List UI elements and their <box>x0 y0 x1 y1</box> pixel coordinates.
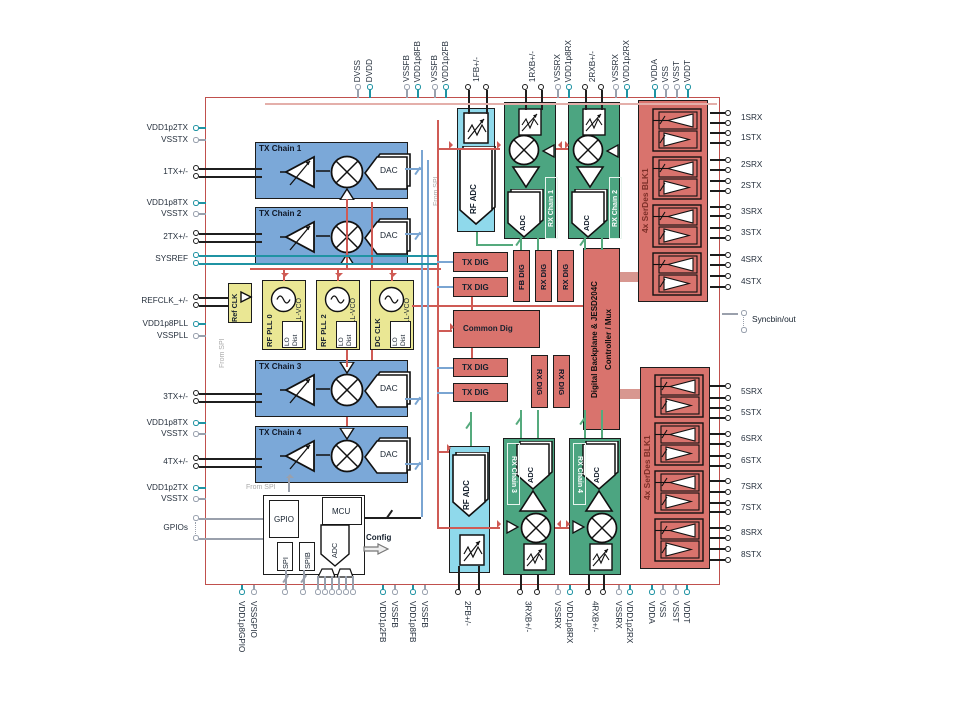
pin-left-vsstx <box>193 431 198 436</box>
pin-label: 4STX <box>741 277 761 286</box>
pin-label: GPIOs <box>163 523 188 532</box>
pin-stub <box>199 202 206 203</box>
wire-r <box>471 297 473 310</box>
wire-k <box>199 241 262 243</box>
pin-stub <box>710 433 725 434</box>
block-diagram: TX DIG TX DIG TX DIG TX DIG FB DIG RX DI… <box>0 0 956 704</box>
wire-r <box>346 350 348 367</box>
pin-stub <box>662 585 663 590</box>
wire-k <box>199 458 262 460</box>
arrowhead-icon <box>450 323 458 331</box>
pin-right-4stx <box>725 284 731 290</box>
wire-b <box>437 392 453 394</box>
pin-top-vsst <box>674 84 679 89</box>
wire-r <box>371 350 373 360</box>
pin-bottom-vsst <box>673 589 678 594</box>
pin-stub <box>710 169 725 170</box>
pin-label: REFCLK_+/- <box>141 296 188 305</box>
wire-gy <box>199 538 263 540</box>
pin-label: VDD1p8RX <box>564 40 573 82</box>
wire-gy <box>722 313 738 315</box>
pin-right-1stx <box>725 130 731 136</box>
common-dig-block: Common Dig <box>453 310 540 348</box>
pin-left-vsspll <box>193 333 198 338</box>
pin-stub <box>199 335 206 336</box>
pin-label: 2RXB+/- <box>588 51 597 82</box>
rx-chain-label: RX Chain 2 <box>612 190 619 227</box>
wire-g <box>601 410 603 438</box>
gpio-label: GPIO <box>274 515 294 524</box>
pin-stub <box>710 142 725 143</box>
pin-top-2rxb <box>598 84 604 90</box>
pll-block-2: DC CLKPLL-VCOLODist <box>370 280 414 350</box>
wire-t <box>199 263 437 265</box>
pin-right-1stx <box>725 140 731 146</box>
pin-right-5stx <box>725 405 731 411</box>
config-label: Config <box>366 533 391 542</box>
tx-dig-label: TX DIG <box>462 388 489 397</box>
adc-label: ADC <box>518 197 527 231</box>
pin-stub <box>710 417 725 418</box>
buffer-icon <box>239 290 253 304</box>
pin-stub <box>710 180 725 181</box>
pin-bottom-vdd1p8rx <box>567 589 572 594</box>
pin-stub <box>710 480 725 481</box>
pin-stub <box>241 585 242 590</box>
pin-stub <box>710 537 725 538</box>
pin-label: 8STX <box>741 550 761 559</box>
wire-b <box>427 160 429 460</box>
arrowhead-icon <box>565 141 573 149</box>
wire-b <box>437 261 453 263</box>
pin-stub <box>626 90 627 98</box>
lo-dist-label: LODist <box>338 324 354 346</box>
pin-label: VSSGPIO <box>249 601 258 638</box>
wire-r <box>437 148 500 150</box>
rx-chain-label: RX Chain 1 <box>548 190 555 227</box>
jesd-label: Digital Backplane & JESD204C Controller … <box>588 251 618 429</box>
tx-dig-label: TX DIG <box>462 258 489 267</box>
from-spi-note: From SPI <box>219 328 226 368</box>
pin-top-vdd1p2fb <box>443 84 448 89</box>
pin-stub <box>382 585 383 590</box>
pin-label: VSST <box>671 601 680 622</box>
arrowhead-icon <box>447 444 455 452</box>
wire-r <box>346 417 348 426</box>
serdes-lane <box>652 204 702 248</box>
pin-left-2tx <box>193 230 199 236</box>
tx-dig-block-2: TX DIG <box>453 277 508 297</box>
pin-bottom-unlabeled <box>336 589 341 594</box>
gpio-box: GPIO <box>269 500 299 538</box>
lo-buffer-icon <box>505 520 520 534</box>
pin-top-vdd1p8rx <box>566 84 571 89</box>
wire-p <box>265 103 717 105</box>
adc-label: ADC <box>582 197 591 231</box>
attenuator-icon <box>589 543 614 572</box>
pin-stub <box>618 585 619 590</box>
pin-stub <box>557 90 558 98</box>
pin-stub <box>199 487 206 488</box>
pll-name: RF PLL 0 <box>265 287 274 347</box>
pin-label: 4RXB+/- <box>591 601 600 632</box>
rx-chain-label-box: RX Chain 1 <box>545 177 558 239</box>
wire-r <box>371 202 373 268</box>
tx-chain-title: TX Chain 1 <box>259 144 301 153</box>
rx-chain-label: RX Chain 4 <box>576 456 583 493</box>
rx-dig-block-2: RX DIG <box>557 250 574 302</box>
pin-label: 2FB+/- <box>463 601 472 626</box>
pin-right-5srx <box>725 383 731 389</box>
mixer-icon <box>329 438 365 474</box>
pin-stub <box>710 215 725 216</box>
pin-right-2srx <box>725 167 731 173</box>
ref-clk-block: Ref CLK <box>228 283 252 323</box>
pin-top-2rxb <box>582 84 588 90</box>
pin-stub <box>687 90 688 98</box>
pin-right-3stx <box>725 235 731 241</box>
pin-bottom-vssfb <box>392 589 397 594</box>
pin-right-syncb <box>741 310 746 315</box>
wire-g <box>476 244 513 246</box>
pin-stub <box>615 90 616 98</box>
pin-label: VSSRX <box>611 54 620 82</box>
serdes-lane <box>654 470 704 514</box>
serdes-bottom-label: 4x SerDes BLK1 <box>642 375 654 561</box>
rf-adc-label: RF ADC <box>462 462 471 510</box>
tx-chain-4-block: TX Chain 4DAC <box>255 426 408 483</box>
pin-bottom-2fb <box>455 589 461 595</box>
dac-label: DAC <box>380 230 398 240</box>
adc-pentagon <box>582 441 620 491</box>
pin-bottom-vssgpio <box>251 589 256 594</box>
pin-right-4srx <box>725 252 731 258</box>
wire-g <box>537 410 539 438</box>
pin-stub <box>557 585 558 590</box>
pin-stub <box>710 122 725 123</box>
pin-stub <box>710 112 725 113</box>
pin-left-gpios <box>193 515 198 520</box>
pin-stub <box>568 90 569 98</box>
pin-label: VDD1p8FB <box>408 601 417 642</box>
rx-dig-block-3: RX DIG <box>531 355 548 408</box>
mcu-adc-label: ADC <box>330 532 339 558</box>
pin-label: 3SRX <box>741 207 762 216</box>
amplifier-icon <box>280 219 316 255</box>
tx-dig-label: TX DIG <box>462 283 489 292</box>
wire-k <box>199 168 262 170</box>
pin-left-vdd1p8tx <box>193 200 198 205</box>
pin-stub <box>710 443 725 444</box>
pin-left-vdd1p8tx <box>193 420 198 425</box>
wire-g <box>476 232 478 244</box>
pin-label: VDD1p8TX <box>147 418 188 427</box>
pin-stub <box>710 548 725 549</box>
pin-stub <box>199 139 206 140</box>
pin-stub <box>352 576 353 589</box>
rx-chain-2-block: RX Chain 2ADC <box>568 102 620 239</box>
wire-g <box>537 238 539 250</box>
wire-gy <box>199 518 263 520</box>
pin-label: VDDT <box>682 601 691 623</box>
pin-stub <box>629 585 630 590</box>
mixer-icon <box>571 133 606 168</box>
pin-left-vsstx <box>193 211 198 216</box>
pin-right-2srx <box>725 157 731 163</box>
pin-stub <box>710 491 725 492</box>
pin-top-vssfb <box>432 84 437 89</box>
pin-top-vdd1p2rx <box>624 84 629 89</box>
rx-chain-4-block: RX Chain 4ADC <box>569 438 621 575</box>
dac-label: DAC <box>380 165 398 175</box>
rx-chain-label-box: RX Chain 4 <box>573 443 586 505</box>
attenuator-icon <box>523 543 548 572</box>
pin-left-1tx <box>193 173 199 179</box>
pin-stub <box>199 213 206 214</box>
wire-g <box>584 410 586 438</box>
pin-label: VSSFB <box>420 601 429 628</box>
pin-label: VDD1p8FB <box>413 41 422 82</box>
pll-name: DC CLK <box>373 287 382 347</box>
pin-left-refclk <box>193 302 199 308</box>
serdes-lane <box>652 156 702 200</box>
pin-left-2tx <box>193 238 199 244</box>
pin-right-8stx <box>725 557 731 563</box>
mcu-block: GPIO MCU SPI SPIB ADC <box>263 495 365 575</box>
rx-dig-label: RX DIG <box>561 254 570 300</box>
lo-dist-label: LODist <box>392 324 408 346</box>
pin-bottom-vddt <box>684 589 689 594</box>
pin-stub <box>369 90 370 98</box>
spib-label: SPIB <box>303 546 312 569</box>
pin-label: VSS <box>661 66 670 82</box>
pin-stub <box>569 585 570 590</box>
tx-chain-3-block: TX Chain 3DAC <box>255 360 408 417</box>
pin-stub <box>675 585 676 590</box>
pin-right-2stx <box>725 178 731 184</box>
pin-stub <box>710 502 725 503</box>
dotted-link <box>195 522 196 534</box>
wire-gy <box>288 478 290 492</box>
pin-left-4tx <box>193 463 199 469</box>
pin-label: 1FB+/- <box>472 57 481 82</box>
pin-label: VSSTX <box>161 209 188 218</box>
pin-top-vssrx <box>555 84 560 89</box>
pin-label: DVSS <box>353 60 362 82</box>
wire-k <box>199 466 262 468</box>
wire-k <box>525 90 527 110</box>
serdes-lane <box>654 374 704 418</box>
pin-bottom-3rxb <box>517 589 523 595</box>
pin-label: VDD1p8PLL <box>142 319 188 328</box>
arrowhead-icon <box>497 520 505 528</box>
pin-top-1fb <box>483 84 489 90</box>
pin-stub <box>710 190 725 191</box>
pin-bottom-4rxb <box>585 589 591 595</box>
pin-left-vdd1p8pll <box>193 321 198 326</box>
pin-stub <box>199 498 206 499</box>
mixer-icon <box>519 511 554 546</box>
pin-top-vdda <box>652 84 657 89</box>
pin-label: 6SRX <box>741 434 762 443</box>
attenuator-icon <box>459 534 485 566</box>
pin-label: VSSFB <box>430 55 439 82</box>
wire-g <box>601 238 603 250</box>
sync-label: Syncbin/out <box>752 314 796 324</box>
pin-right-7stx <box>725 500 731 506</box>
spi-box: SPI <box>277 542 293 571</box>
pin-right-5srx <box>725 395 731 401</box>
mcu-label: MCU <box>332 507 350 516</box>
pin-stub <box>651 585 652 590</box>
pin-stub <box>686 585 687 590</box>
pin-right-8srx <box>725 535 731 541</box>
rx-chain-label-box: RX Chain 3 <box>507 443 520 505</box>
pin-label: 5STX <box>741 408 761 417</box>
wire-k <box>520 574 522 590</box>
attenuator-icon <box>463 112 489 144</box>
wire-g <box>470 412 472 446</box>
pin-label: 2SRX <box>741 160 762 169</box>
rx-dig-label: RX DIG <box>557 359 566 406</box>
mixer-icon <box>329 372 365 408</box>
pin-right-7srx <box>725 478 731 484</box>
pin-stub <box>710 275 725 276</box>
rf-adc-label: RF ADC <box>469 162 478 214</box>
wire-k <box>478 566 480 590</box>
pin-stub <box>394 585 395 590</box>
pin-label: VSSTX <box>161 429 188 438</box>
pin-bottom-4rxb <box>600 589 606 595</box>
pin-label: 1RXB+/- <box>528 51 537 82</box>
pin-left-vdd1p2tx <box>193 485 198 490</box>
ref-clk-label: Ref CLK <box>230 286 239 322</box>
amplifier-icon <box>518 489 548 513</box>
lo-dist-box: LODist <box>390 321 411 348</box>
pin-stub <box>654 90 655 98</box>
pin-bottom-vssfb <box>422 589 427 594</box>
pin-right-4stx <box>725 273 731 279</box>
pll-block-0: RF PLL 0PLL-VCOLODist <box>262 280 306 350</box>
pin-bottom-unlabeled <box>315 589 320 594</box>
pin-stub <box>434 90 435 98</box>
pin-stub <box>199 433 206 434</box>
pin-label: VSSTX <box>161 135 188 144</box>
adc-pentagon <box>459 146 497 228</box>
pin-bottom-unlabeled <box>300 589 305 594</box>
arrowhead-icon <box>554 141 562 149</box>
tx-dig-block-4: TX DIG <box>453 383 508 402</box>
pin-stub <box>710 159 725 160</box>
config-arrow-icon <box>363 543 391 555</box>
pin-right-7stx <box>725 509 731 515</box>
lo-dist-box: LODist <box>336 321 357 348</box>
adc-label: ADC <box>592 449 601 483</box>
pin-top-dvdd <box>367 84 372 89</box>
pin-left-vsstx <box>193 496 198 501</box>
lo-dist-box: LODist <box>282 321 303 348</box>
pin-label: VDDT <box>683 60 692 82</box>
pin-top-1rxb <box>522 84 528 90</box>
pin-label: 5SRX <box>741 387 762 396</box>
pin-label: 8SRX <box>741 528 762 537</box>
pin-stub <box>331 576 332 589</box>
common-dig-label: Common Dig <box>463 324 513 333</box>
arrowhead-icon <box>449 141 457 149</box>
adc-pentagon <box>516 441 554 491</box>
wire-k <box>537 574 539 590</box>
pin-left-vsstx <box>193 137 198 142</box>
wire-k <box>199 176 262 178</box>
pin-right-syncb <box>741 327 746 332</box>
tx-chain-1-block: TX Chain 1DAC <box>255 142 408 199</box>
pin-stub <box>338 576 339 589</box>
pin-right-2stx <box>725 188 731 194</box>
pin-label: VSSPLL <box>157 331 188 340</box>
arrowhead-icon <box>566 520 574 528</box>
pin-left-4tx <box>193 455 199 461</box>
wire-k <box>486 90 488 114</box>
pin-top-vssrx <box>613 84 618 89</box>
pin-stub <box>199 127 206 128</box>
pin-stub <box>424 585 425 590</box>
rx-dig-block-1: RX DIG <box>535 250 552 302</box>
pin-left-gpios <box>193 535 198 540</box>
pin-left-sysref <box>193 252 198 257</box>
pin-stub <box>710 455 725 456</box>
vco-icon <box>378 286 405 313</box>
wire-r <box>250 268 441 270</box>
pin-label: 2STX <box>741 181 761 190</box>
pin-stub <box>199 323 206 324</box>
arrowhead-icon <box>497 141 505 149</box>
spib-box: SPIB <box>299 542 315 571</box>
pin-bottom-vdda <box>649 589 654 594</box>
pin-stub <box>345 576 346 589</box>
jesd-serdes-connector <box>620 272 638 282</box>
pin-top-vddt <box>685 84 690 89</box>
wire-t <box>199 255 437 257</box>
pin-label: VSSRX <box>614 601 623 629</box>
pin-stub <box>710 397 725 398</box>
pin-stub <box>710 264 725 265</box>
wire-k <box>199 305 228 307</box>
pin-stub <box>445 90 446 98</box>
pin-right-1srx <box>725 110 731 116</box>
pin-stub <box>710 227 725 228</box>
pin-right-6srx <box>725 441 731 447</box>
from-spi-note: From SPI <box>246 484 276 491</box>
pin-right-4srx <box>725 262 731 268</box>
pin-bottom-vdd1p2fb <box>380 589 385 594</box>
pin-stub <box>417 90 418 98</box>
pin-top-1fb <box>465 84 471 90</box>
pin-right-1srx <box>725 120 731 126</box>
fb-dig-label: FB DIG <box>517 254 526 300</box>
pin-bottom-vdd1p8gpio <box>239 589 244 594</box>
pin-label: DVDD <box>365 59 374 82</box>
pin-label: SYSREF <box>155 254 188 263</box>
wire-g <box>520 410 522 438</box>
pin-label: VSST <box>672 61 681 82</box>
serdes-lane <box>652 108 702 152</box>
mixer-icon <box>507 133 542 168</box>
pin-left-sysref <box>193 260 198 265</box>
wire-b <box>437 367 453 369</box>
serdes-lane <box>654 518 704 562</box>
pin-stub <box>710 559 725 560</box>
wire-k <box>541 90 543 110</box>
